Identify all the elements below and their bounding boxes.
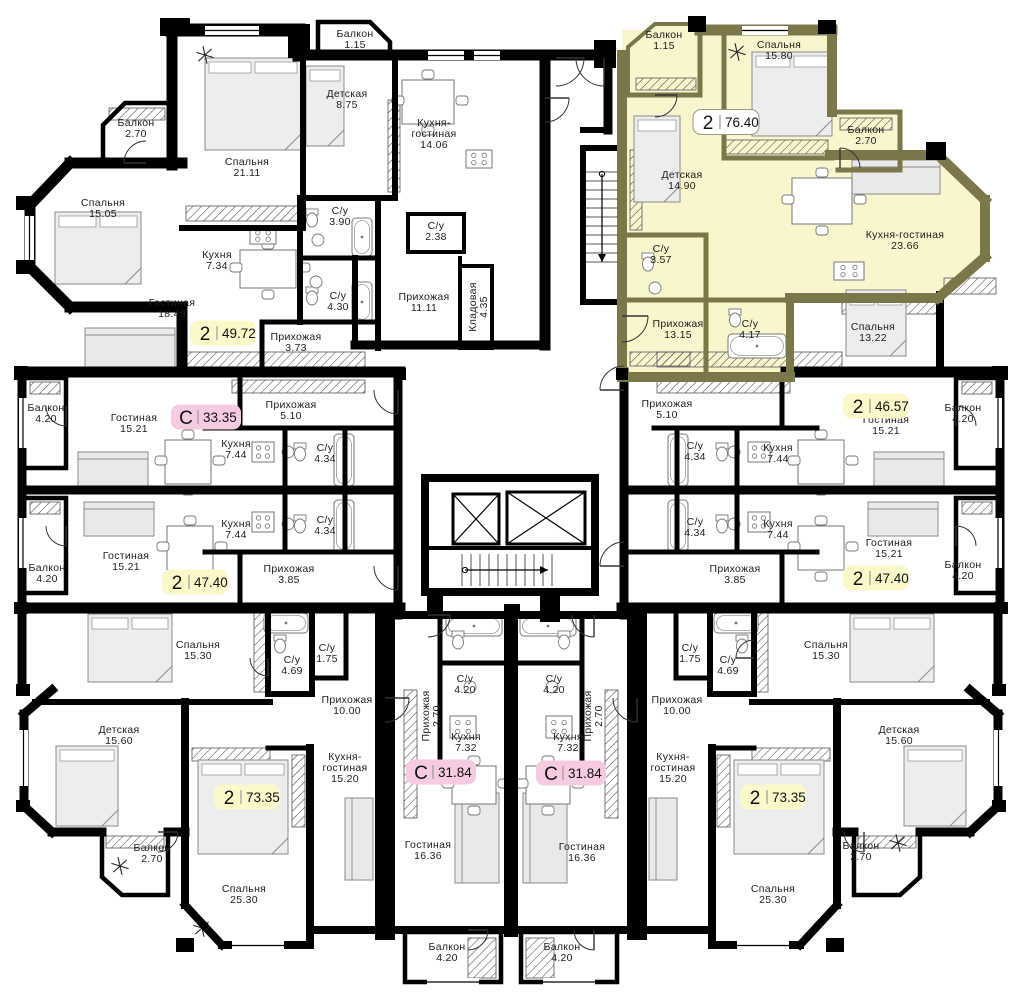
apartment-badge[interactable]: 247.40 <box>162 570 228 595</box>
apartment-badge[interactable]: 247.40 <box>843 566 909 591</box>
svg-text:2: 2 <box>200 324 211 345</box>
svg-text:4.34: 4.34 <box>314 525 336 537</box>
room-label: Балкон4.20 <box>428 941 465 964</box>
apartment-badge[interactable]: С31.84 <box>406 760 476 785</box>
svg-text:2: 2 <box>224 788 235 809</box>
apartment-badge[interactable]: С33.35 <box>171 405 241 430</box>
svg-text:7.32: 7.32 <box>455 742 477 754</box>
room-label: Кухня7.44 <box>221 518 251 541</box>
svg-text:4.20: 4.20 <box>436 952 458 964</box>
svg-text:1.75: 1.75 <box>679 653 701 665</box>
svg-text:31.84: 31.84 <box>568 766 602 781</box>
room-label: С/у4.69 <box>281 654 303 677</box>
room-label: Кухня7.32 <box>553 731 583 754</box>
svg-text:2: 2 <box>703 113 714 134</box>
room-label: Прихожая10.00 <box>651 694 702 717</box>
svg-text:33.35: 33.35 <box>203 410 237 425</box>
svg-text:15.21: 15.21 <box>875 548 903 560</box>
svg-text:15.21: 15.21 <box>112 561 140 573</box>
room-label: Спальня21.11 <box>225 156 269 179</box>
room-label: С/у4.34 <box>684 440 706 463</box>
room-label: Прихожая2.70 <box>582 690 605 741</box>
svg-text:4.20: 4.20 <box>454 684 476 696</box>
svg-text:10.00: 10.00 <box>663 705 691 717</box>
apartment-badge[interactable]: 276.40 <box>693 110 759 135</box>
svg-text:2.70: 2.70 <box>431 705 443 727</box>
room-label: Прихожая3.85 <box>263 563 314 586</box>
svg-text:15.60: 15.60 <box>105 735 133 747</box>
svg-text:Кухня-гостиная: Кухня-гостиная <box>322 751 367 774</box>
svg-text:18.49: 18.49 <box>158 308 186 320</box>
svg-text:4.17: 4.17 <box>739 329 761 341</box>
room-label: Гостиная18.49 <box>149 297 195 320</box>
room-label: Спальня25.30 <box>751 883 795 906</box>
svg-text:14.06: 14.06 <box>420 139 448 151</box>
elevator-stairs-core <box>425 171 618 592</box>
svg-text:31.84: 31.84 <box>438 765 472 780</box>
svg-text:2: 2 <box>172 573 183 594</box>
svg-text:С: С <box>544 764 558 785</box>
svg-text:1.75: 1.75 <box>316 653 338 665</box>
room-label: Кухня-гостиная14.06 <box>411 117 456 151</box>
room-label: Балкон4.20 <box>27 402 64 425</box>
svg-text:5.10: 5.10 <box>280 410 302 422</box>
svg-text:4.34: 4.34 <box>684 451 706 463</box>
room-label: Балкон4.20 <box>28 562 65 585</box>
svg-text:2.70: 2.70 <box>593 705 605 727</box>
svg-text:Кухня-гостиная: Кухня-гостиная <box>650 751 695 774</box>
room-label: Детская15.60 <box>99 724 140 747</box>
room-label: С/у4.20 <box>543 673 565 696</box>
svg-text:23.66: 23.66 <box>891 240 919 252</box>
svg-text:10.00: 10.00 <box>333 705 361 717</box>
room-label: Кухня-гостиная15.20 <box>322 751 367 785</box>
svg-text:15.20: 15.20 <box>331 773 359 785</box>
room-label: Прихожая10.00 <box>321 694 372 717</box>
svg-text:1.15: 1.15 <box>653 40 675 52</box>
room-label: Кухня7.44 <box>221 438 251 461</box>
room-label: Прихожая11.11 <box>398 291 449 314</box>
svg-text:4.20: 4.20 <box>952 413 974 425</box>
svg-text:16.36: 16.36 <box>414 850 442 862</box>
svg-text:15.05: 15.05 <box>89 208 117 220</box>
svg-text:25.30: 25.30 <box>759 894 787 906</box>
svg-text:15.80: 15.80 <box>765 50 793 62</box>
floor-plan-page: Балкон2.70Спальня15.05Спальня21.11Детска… <box>0 0 1022 1000</box>
room-label: С/у4.20 <box>454 673 476 696</box>
svg-text:С: С <box>179 408 193 429</box>
room-label: Детская15.60 <box>879 724 920 747</box>
svg-text:4.20: 4.20 <box>952 570 974 582</box>
svg-text:4.35: 4.35 <box>478 296 490 318</box>
room-label: Балкон4.20 <box>944 559 981 582</box>
room-label: Гостиная15.21 <box>103 550 149 573</box>
svg-text:47.40: 47.40 <box>875 571 909 586</box>
svg-text:7.32: 7.32 <box>557 742 579 754</box>
room-label: С/у4.17 <box>739 318 761 341</box>
room-label: С/у1.75 <box>679 642 701 665</box>
svg-text:15.30: 15.30 <box>812 650 840 662</box>
svg-text:7.34: 7.34 <box>206 260 228 272</box>
svg-text:15.21: 15.21 <box>120 423 148 435</box>
svg-text:2.38: 2.38 <box>425 231 447 243</box>
svg-text:13.15: 13.15 <box>664 329 692 341</box>
apartment-badge[interactable]: 273.35 <box>214 785 280 810</box>
room-label: С/у4.34 <box>314 442 336 465</box>
svg-text:5.10: 5.10 <box>656 409 678 421</box>
room-label: Балкон2.70 <box>117 117 154 140</box>
svg-text:47.40: 47.40 <box>194 575 228 590</box>
svg-text:4.69: 4.69 <box>717 665 739 677</box>
svg-text:73.35: 73.35 <box>772 790 806 805</box>
apartment-badge[interactable]: 273.35 <box>740 785 806 810</box>
svg-text:76.40: 76.40 <box>725 115 759 130</box>
room-label: С/у1.75 <box>316 642 338 665</box>
room-label: Кладовая4.35 <box>467 282 490 331</box>
room-label: Балкон2.70 <box>133 842 170 865</box>
room-label: Кухня-гостиная15.20 <box>650 751 695 785</box>
svg-text:15.21: 15.21 <box>872 425 900 437</box>
svg-text:2.70: 2.70 <box>855 135 877 147</box>
room-label: Кухня7.44 <box>763 442 793 465</box>
svg-text:2.70: 2.70 <box>125 128 147 140</box>
room-label: Спальня15.30 <box>176 639 220 662</box>
room-label: Прихожая5.10 <box>265 399 316 422</box>
svg-text:2.70: 2.70 <box>141 853 163 865</box>
room-label: Гостиная15.21 <box>866 537 912 560</box>
room-label: Прихожая5.10 <box>641 398 692 421</box>
svg-text:1.15: 1.15 <box>344 39 366 51</box>
room-label: Кухня7.44 <box>763 518 793 541</box>
svg-text:2: 2 <box>750 788 761 809</box>
svg-text:3.90: 3.90 <box>329 216 351 228</box>
room-label: С/у4.34 <box>684 516 706 539</box>
svg-text:2.70: 2.70 <box>850 851 872 863</box>
room-label: Балкон1.15 <box>336 28 373 51</box>
room-label: Кухня7.32 <box>451 731 481 754</box>
svg-text:49.72: 49.72 <box>222 326 256 341</box>
svg-text:14.90: 14.90 <box>668 180 696 192</box>
svg-text:3.73: 3.73 <box>285 342 307 354</box>
svg-text:4.20: 4.20 <box>35 413 57 425</box>
svg-text:4.20: 4.20 <box>36 573 58 585</box>
svg-text:73.35: 73.35 <box>246 790 280 805</box>
room-label: С/у3.57 <box>650 243 672 266</box>
svg-text:Кухня-гостиная: Кухня-гостиная <box>411 117 456 140</box>
room-label: Гостиная15.21 <box>111 412 157 435</box>
svg-text:13.22: 13.22 <box>859 332 887 344</box>
room-label: С/у2.38 <box>425 220 447 243</box>
svg-text:4.30: 4.30 <box>327 301 349 313</box>
svg-text:7.44: 7.44 <box>767 453 789 465</box>
svg-text:8.75: 8.75 <box>336 99 358 111</box>
svg-text:46.57: 46.57 <box>875 399 909 414</box>
svg-text:2: 2 <box>853 397 864 418</box>
room-label: Кухня7.34 <box>202 249 232 272</box>
svg-text:4.20: 4.20 <box>543 684 565 696</box>
svg-text:4.34: 4.34 <box>314 453 336 465</box>
room-label: Спальня25.30 <box>222 883 266 906</box>
svg-text:7.44: 7.44 <box>225 529 247 541</box>
room-label: Прихожая3.85 <box>709 563 760 586</box>
floor-plan-svg: Балкон2.70Спальня15.05Спальня21.11Детска… <box>0 0 1022 1000</box>
room-label: С/у4.34 <box>314 514 336 537</box>
apartment-badge[interactable]: 246.57 <box>843 394 909 419</box>
svg-text:15.30: 15.30 <box>184 650 212 662</box>
apartment-badge[interactable]: 249.72 <box>190 321 256 346</box>
svg-text:16.36: 16.36 <box>568 852 596 864</box>
room-label: С/у3.90 <box>329 205 351 228</box>
svg-text:11.11: 11.11 <box>411 302 437 314</box>
svg-text:3.57: 3.57 <box>650 254 672 266</box>
svg-text:21.11: 21.11 <box>234 167 261 179</box>
svg-text:15.20: 15.20 <box>659 773 687 785</box>
svg-text:С: С <box>414 763 428 784</box>
room-label: С/у4.69 <box>717 654 739 677</box>
svg-text:3.85: 3.85 <box>724 574 746 586</box>
room-label: Балкон2.70 <box>842 840 879 863</box>
svg-text:4.20: 4.20 <box>551 952 573 964</box>
svg-text:3.85: 3.85 <box>278 574 300 586</box>
room-label: Прихожая3.73 <box>270 331 321 354</box>
svg-text:15.60: 15.60 <box>885 735 913 747</box>
room-label: Спальня15.30 <box>804 639 848 662</box>
svg-text:7.44: 7.44 <box>767 529 789 541</box>
room-label: С/у4.30 <box>327 290 349 313</box>
room-label: Гостиная16.36 <box>405 839 451 862</box>
svg-text:4.34: 4.34 <box>684 527 706 539</box>
apartment-badge[interactable]: С31.84 <box>536 761 606 786</box>
svg-text:2: 2 <box>853 569 864 590</box>
svg-text:25.30: 25.30 <box>230 894 258 906</box>
svg-text:4.69: 4.69 <box>281 665 303 677</box>
svg-text:7.44: 7.44 <box>225 449 247 461</box>
